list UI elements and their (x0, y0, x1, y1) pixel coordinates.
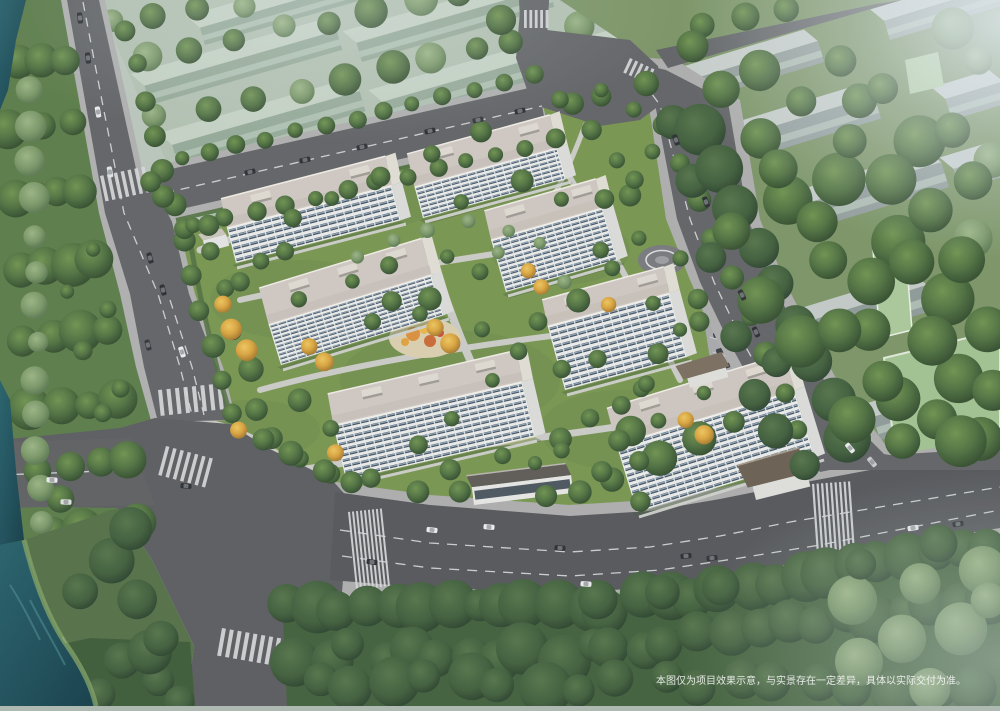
svg-text:本图仅为项目效果示意，与实景存在一定差异，具体以实际交付为准: 本图仅为项目效果示意，与实景存在一定差异，具体以实际交付为准。 (656, 674, 966, 687)
